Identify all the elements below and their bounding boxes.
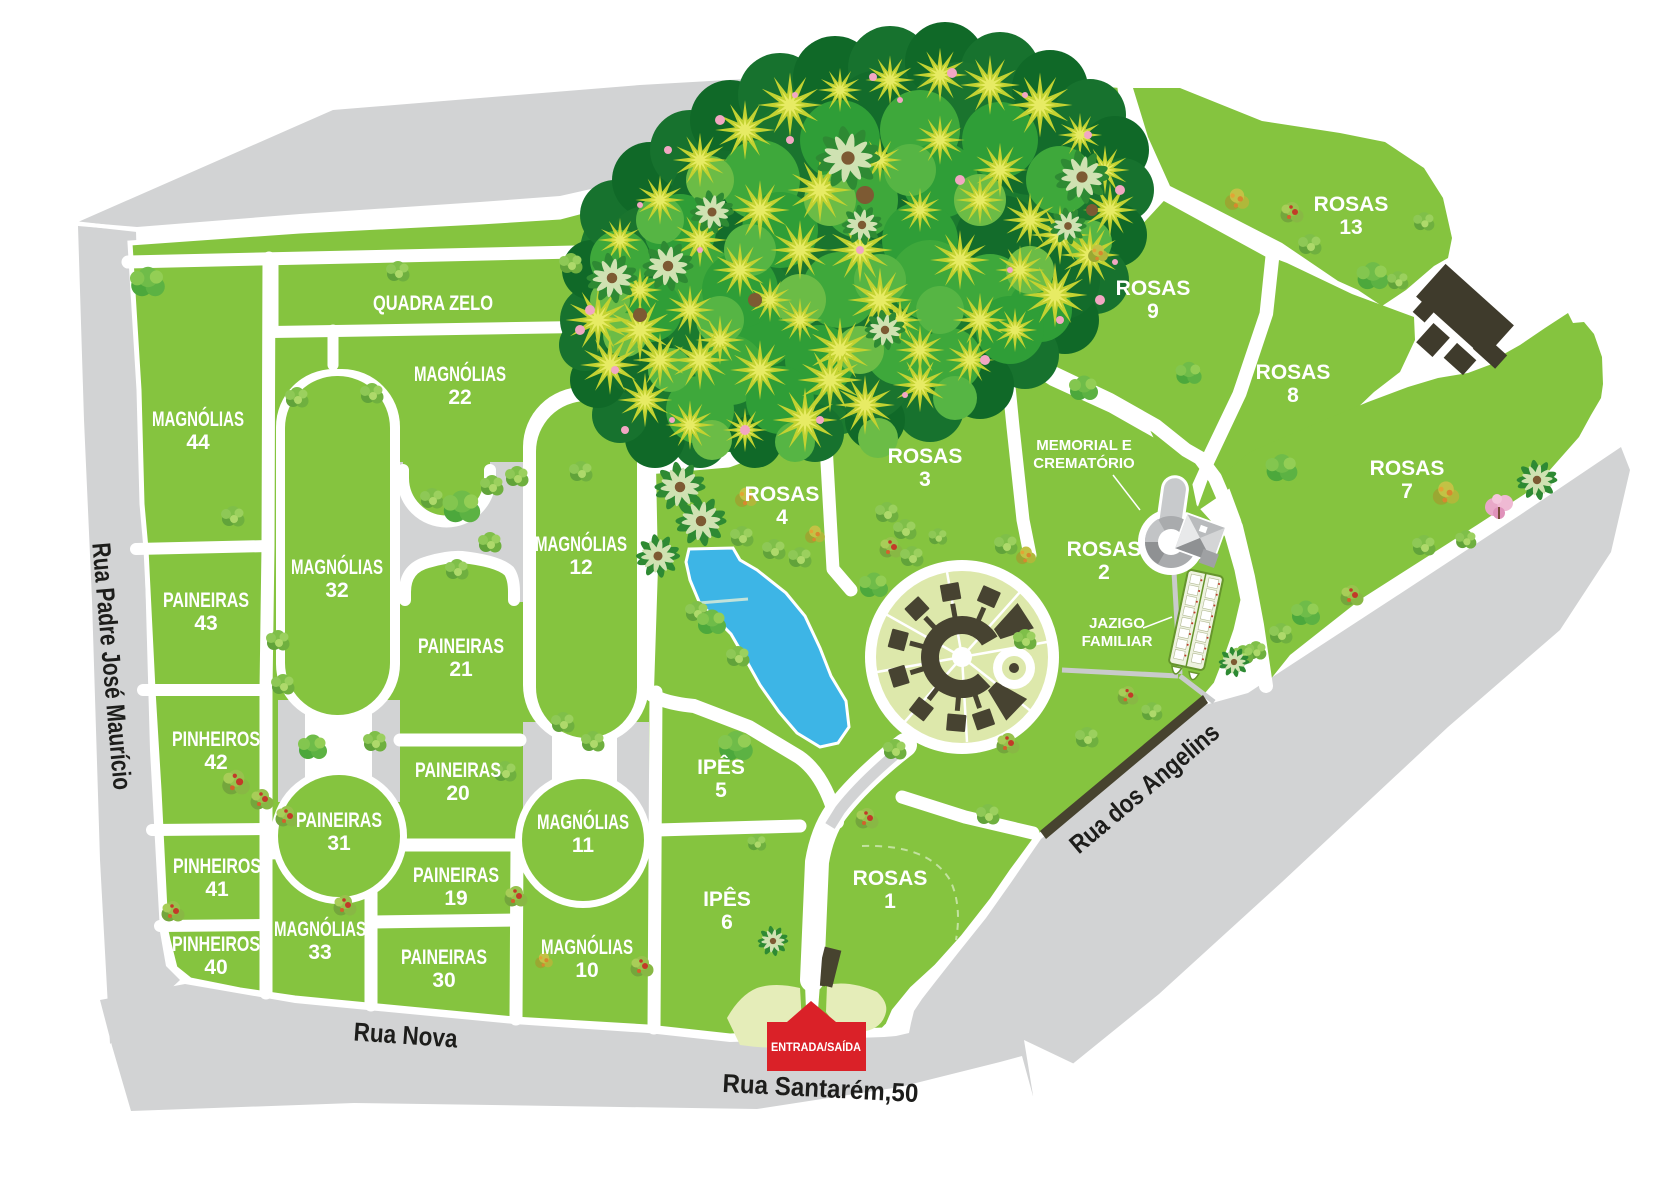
svg-text:PAINEIRAS: PAINEIRAS [163, 589, 249, 612]
svg-text:41: 41 [205, 878, 229, 901]
svg-text:3: 3 [919, 468, 931, 491]
svg-text:20: 20 [446, 782, 469, 805]
svg-text:PINHEIROS: PINHEIROS [173, 855, 261, 878]
svg-text:JAZIGO: JAZIGO [1089, 615, 1145, 632]
svg-text:PAINEIRAS: PAINEIRAS [413, 864, 499, 887]
svg-text:30: 30 [432, 969, 455, 992]
svg-text:MAGNÓLIAS: MAGNÓLIAS [152, 407, 244, 431]
svg-text:1: 1 [884, 890, 896, 913]
svg-text:CREMATÓRIO: CREMATÓRIO [1033, 454, 1135, 472]
svg-text:ROSAS: ROSAS [888, 445, 963, 468]
svg-text:FAMILIAR: FAMILIAR [1082, 633, 1153, 650]
svg-text:8: 8 [1287, 384, 1299, 407]
svg-text:PINHEIROS: PINHEIROS [172, 728, 260, 751]
svg-text:7: 7 [1401, 480, 1413, 503]
svg-text:ENTRADA/SAÍDA: ENTRADA/SAÍDA [771, 1039, 861, 1054]
svg-text:ROSAS: ROSAS [1067, 538, 1142, 561]
svg-text:MAGNÓLIAS: MAGNÓLIAS [537, 810, 629, 834]
svg-text:13: 13 [1339, 216, 1362, 239]
svg-text:IPÊS: IPÊS [697, 755, 745, 779]
svg-text:ROSAS: ROSAS [1370, 457, 1445, 480]
svg-text:MEMORIAL E: MEMORIAL E [1036, 437, 1132, 454]
svg-text:44: 44 [186, 431, 210, 454]
svg-text:11: 11 [572, 834, 595, 857]
svg-text:2: 2 [1098, 561, 1110, 584]
svg-text:21: 21 [449, 658, 473, 681]
svg-text:19: 19 [444, 887, 467, 910]
svg-text:MAGNÓLIAS: MAGNÓLIAS [535, 532, 627, 556]
svg-text:ROSAS: ROSAS [1256, 361, 1331, 384]
svg-text:PAINEIRAS: PAINEIRAS [418, 635, 504, 658]
svg-text:33: 33 [308, 941, 331, 964]
svg-text:10: 10 [575, 959, 598, 982]
svg-text:ROSAS: ROSAS [853, 867, 928, 890]
svg-text:22: 22 [448, 386, 471, 409]
svg-text:4: 4 [776, 506, 788, 529]
svg-text:ROSAS: ROSAS [745, 483, 820, 506]
svg-text:31: 31 [327, 832, 351, 855]
svg-text:MAGNÓLIAS: MAGNÓLIAS [291, 555, 383, 579]
svg-text:PAINEIRAS: PAINEIRAS [415, 759, 501, 782]
svg-text:32: 32 [325, 579, 348, 602]
svg-text:42: 42 [204, 751, 227, 774]
svg-text:ROSAS: ROSAS [1314, 193, 1389, 216]
svg-text:PINHEIROS: PINHEIROS [172, 933, 260, 956]
svg-text:PAINEIRAS: PAINEIRAS [401, 946, 487, 969]
svg-text:MAGNÓLIAS: MAGNÓLIAS [414, 362, 506, 386]
svg-text:6: 6 [721, 911, 733, 934]
svg-text:12: 12 [569, 556, 592, 579]
svg-text:ROSAS: ROSAS [1116, 277, 1191, 300]
svg-text:IPÊS: IPÊS [703, 887, 751, 911]
svg-text:QUADRA ZELO: QUADRA ZELO [373, 292, 493, 315]
svg-text:40: 40 [204, 956, 227, 979]
svg-text:PAINEIRAS: PAINEIRAS [296, 809, 382, 832]
svg-text:9: 9 [1147, 300, 1159, 323]
svg-text:MAGNÓLIAS: MAGNÓLIAS [541, 935, 633, 959]
svg-text:MAGNÓLIAS: MAGNÓLIAS [274, 917, 366, 941]
svg-text:5: 5 [715, 779, 727, 802]
svg-text:43: 43 [194, 612, 217, 635]
